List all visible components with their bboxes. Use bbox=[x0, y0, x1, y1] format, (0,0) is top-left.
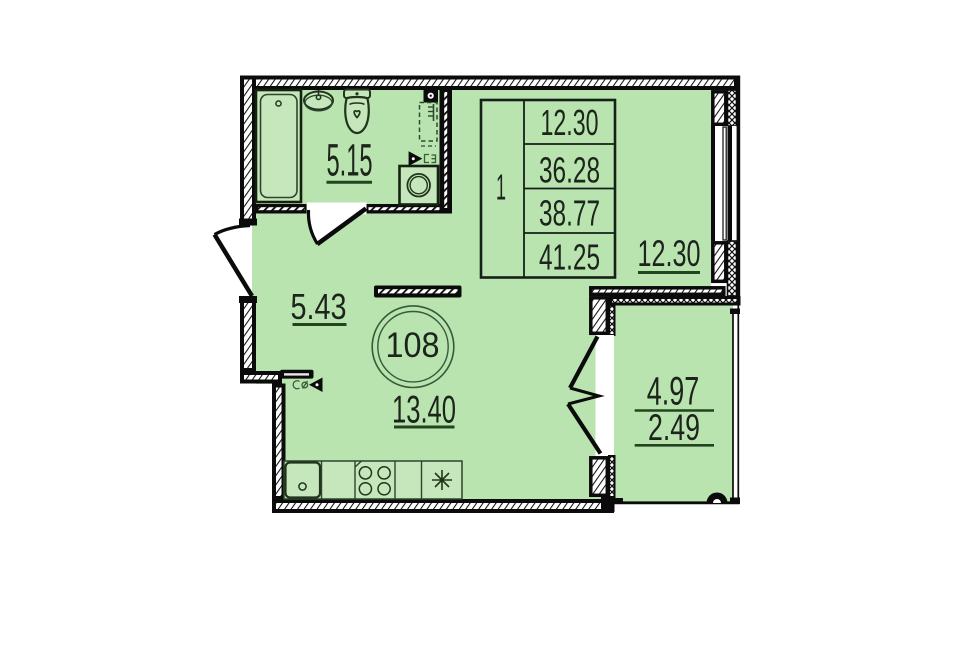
svg-text:5.43: 5.43 bbox=[291, 286, 347, 327]
svg-text:41.25: 41.25 bbox=[539, 237, 600, 278]
svg-text:2.49: 2.49 bbox=[648, 406, 700, 448]
svg-text:108: 108 bbox=[386, 325, 440, 365]
svg-text:36.28: 36.28 bbox=[539, 150, 600, 191]
svg-text:38.77: 38.77 bbox=[539, 193, 600, 234]
svg-text:12.30: 12.30 bbox=[638, 233, 701, 274]
svg-text:12.30: 12.30 bbox=[541, 102, 599, 143]
svg-text:13.40: 13.40 bbox=[392, 389, 456, 432]
svg-text:1: 1 bbox=[496, 167, 506, 208]
svg-text:5.15: 5.15 bbox=[327, 135, 373, 186]
